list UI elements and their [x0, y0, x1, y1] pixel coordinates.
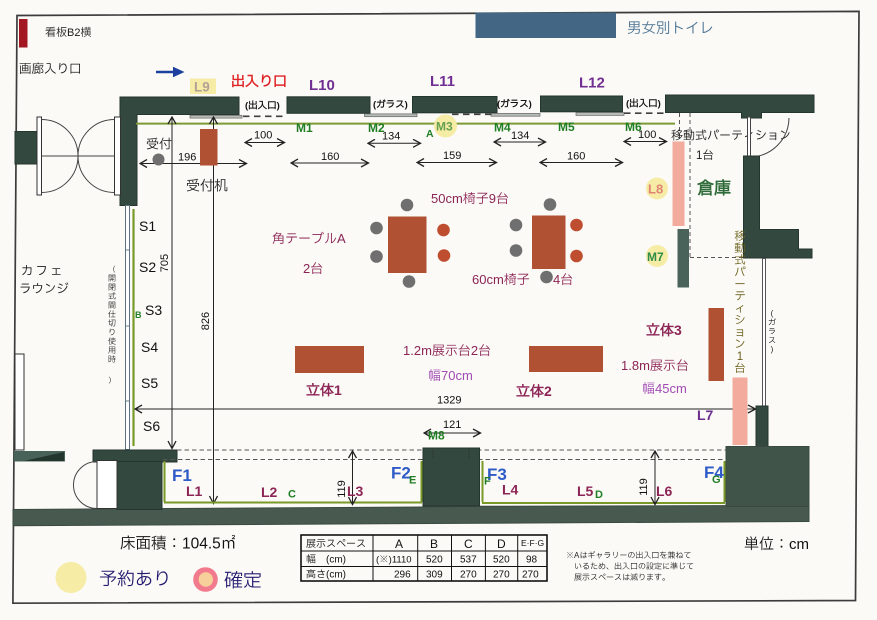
svg-text:L11: L11 — [430, 73, 455, 90]
svg-text:134: 134 — [382, 131, 400, 143]
svg-text:L8: L8 — [648, 182, 663, 197]
svg-text:826: 826 — [200, 312, 212, 330]
svg-text:倉庫: 倉庫 — [697, 179, 731, 198]
svg-text:F: F — [484, 476, 491, 488]
svg-text:L4: L4 — [502, 482, 519, 498]
svg-text:予約あり: 予約あり — [99, 569, 171, 589]
svg-text:L2: L2 — [261, 484, 278, 500]
svg-text:270: 270 — [493, 570, 510, 581]
svg-text:受付: 受付 — [146, 137, 172, 152]
svg-text:119: 119 — [638, 478, 650, 496]
svg-text:C: C — [288, 489, 296, 501]
svg-text:296: 296 — [394, 570, 411, 581]
svg-text:男女別トイレ: 男女別トイレ — [627, 20, 714, 37]
svg-text:S6: S6 — [143, 418, 160, 434]
svg-text:160: 160 — [321, 151, 339, 163]
svg-text:4台: 4台 — [553, 272, 573, 287]
svg-text:）: ） — [108, 376, 116, 385]
svg-text:G: G — [712, 474, 721, 486]
svg-text:M4: M4 — [494, 121, 511, 135]
svg-text:160: 160 — [567, 151, 585, 163]
svg-text:単位：cm: 単位：cm — [744, 536, 809, 553]
svg-text:立体2: 立体2 — [516, 383, 552, 399]
svg-text:看板B2横: 看板B2横 — [45, 26, 91, 39]
svg-text:L9: L9 — [194, 80, 210, 95]
svg-text:M5: M5 — [558, 120, 575, 134]
svg-text:L3: L3 — [347, 483, 364, 499]
svg-text:B: B — [430, 537, 438, 551]
svg-text:展示スペースは減ります。: 展示スペースは減ります。 — [574, 573, 670, 582]
svg-text:画廊入り口: 画廊入り口 — [19, 62, 82, 76]
svg-text:立体1: 立体1 — [306, 382, 342, 398]
svg-text:立体3: 立体3 — [646, 322, 682, 338]
svg-text:S2: S2 — [139, 259, 156, 275]
svg-text:1329: 1329 — [437, 395, 461, 407]
svg-text:S4: S4 — [141, 339, 158, 355]
svg-text:いるため、出入口の設定に準じて: いるため、出入口の設定に準じて — [574, 562, 694, 571]
svg-text:196: 196 — [178, 152, 196, 164]
svg-text:L10: L10 — [309, 77, 335, 94]
svg-text:M3: M3 — [436, 120, 453, 134]
svg-text:M7: M7 — [647, 250, 664, 264]
svg-text:E: E — [409, 475, 416, 487]
svg-text:A: A — [395, 537, 403, 551]
svg-text:展示スペース: 展示スペース — [306, 538, 366, 550]
svg-text:60cm椅子: 60cm椅子 — [472, 272, 530, 287]
svg-text:(ガラス): (ガラス) — [768, 309, 776, 354]
svg-text:受付机: 受付机 — [186, 178, 228, 194]
svg-text:D: D — [497, 537, 506, 551]
svg-text:S5: S5 — [141, 375, 158, 391]
svg-text:M1: M1 — [296, 121, 313, 135]
svg-text:1.2m展示台2台: 1.2m展示台2台 — [403, 343, 491, 358]
svg-text:L7: L7 — [697, 407, 714, 423]
svg-text:C: C — [464, 537, 473, 551]
svg-text:E·F·G: E·F·G — [521, 538, 544, 548]
svg-text:L12: L12 — [579, 75, 605, 92]
svg-text:50cm椅子9台: 50cm椅子9台 — [431, 191, 509, 206]
svg-text:2台: 2台 — [303, 261, 323, 276]
svg-text:705: 705 — [159, 254, 171, 272]
svg-text:270: 270 — [460, 570, 477, 581]
svg-text:121: 121 — [443, 419, 461, 431]
svg-text:(出入口): (出入口) — [626, 98, 661, 110]
svg-text:角テーブルA: 角テーブルA — [272, 231, 346, 246]
svg-text:159: 159 — [443, 150, 461, 162]
svg-text:(ガラス): (ガラス) — [373, 99, 408, 111]
svg-text:(出入口): (出入口) — [245, 100, 280, 112]
svg-text:D: D — [595, 489, 603, 501]
svg-text:幅70cm: 幅70cm — [428, 368, 473, 383]
svg-text:開閉式間仕切り使用時: 開閉式間仕切り使用時 — [108, 274, 116, 364]
svg-text:F2: F2 — [391, 464, 411, 483]
svg-text:537: 537 — [460, 555, 477, 566]
svg-text:L1: L1 — [186, 483, 203, 499]
svg-text:270: 270 — [522, 570, 539, 581]
svg-text:L5: L5 — [577, 483, 594, 499]
svg-text:100: 100 — [254, 130, 272, 142]
svg-text:幅45cm: 幅45cm — [642, 381, 687, 396]
svg-text:98: 98 — [526, 555, 538, 566]
svg-text:カフェ: カフェ — [21, 264, 65, 278]
svg-text:A: A — [426, 128, 434, 140]
svg-text:309: 309 — [426, 570, 443, 581]
svg-text:(※)1110: (※)1110 — [376, 555, 412, 566]
svg-text:L6: L6 — [656, 483, 673, 499]
svg-text:M8: M8 — [428, 429, 445, 443]
svg-text:S3: S3 — [145, 302, 162, 318]
svg-text:100: 100 — [638, 129, 656, 141]
svg-text:高さ(cm): 高さ(cm) — [306, 569, 346, 581]
svg-text:幅 (cm): 幅 (cm) — [306, 554, 346, 566]
svg-text:※Aはギャラリーの出入口を兼ねて: ※Aはギャラリーの出入口を兼ねて — [566, 551, 691, 560]
svg-text:（: （ — [108, 265, 116, 274]
svg-text:520: 520 — [426, 555, 443, 566]
svg-text:移動式パーティション1台: 移動式パーティション1台 — [734, 230, 746, 375]
svg-text:134: 134 — [511, 130, 529, 142]
svg-text:床面積：104.5㎡: 床面積：104.5㎡ — [120, 535, 236, 553]
svg-text:ラウンジ: ラウンジ — [19, 282, 69, 296]
svg-text:S1: S1 — [139, 218, 156, 234]
svg-text:移動式パーティション: 移動式パーティション — [671, 129, 791, 143]
svg-text:1台: 1台 — [696, 149, 714, 162]
svg-text:B: B — [135, 310, 142, 320]
svg-text:520: 520 — [493, 555, 510, 566]
svg-text:確定: 確定 — [224, 571, 262, 592]
svg-text:出入り口: 出入り口 — [231, 73, 287, 89]
svg-text:1.8m展示台: 1.8m展示台 — [621, 358, 689, 373]
svg-text:(ガラス): (ガラス) — [497, 98, 532, 110]
